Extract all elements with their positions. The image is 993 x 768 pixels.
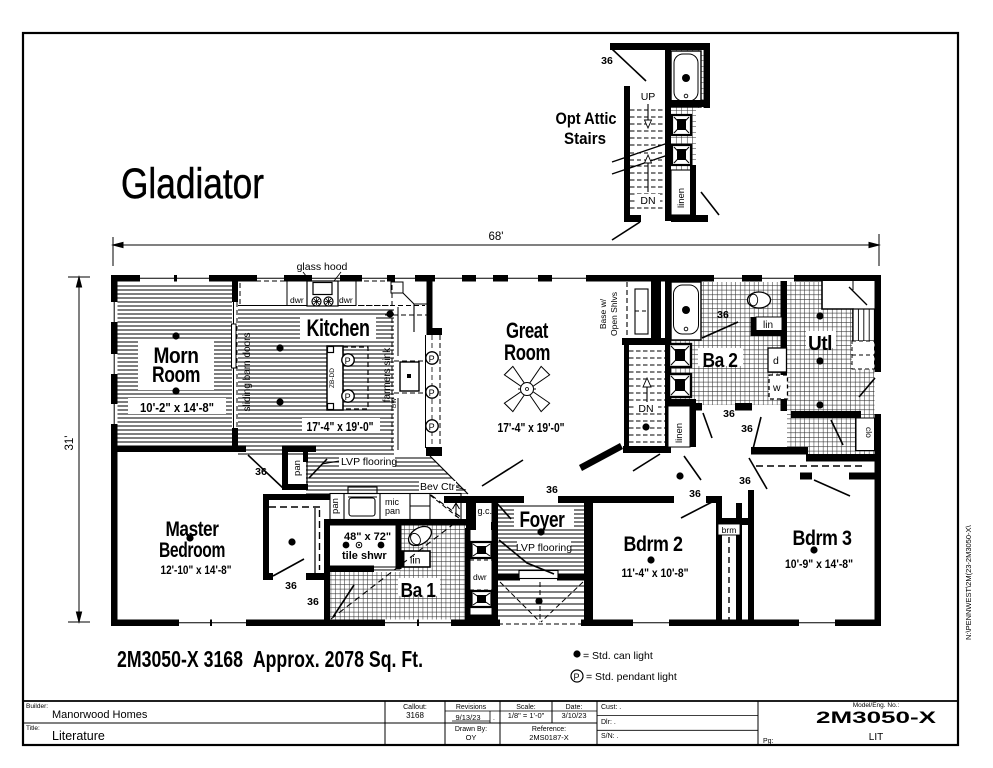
- svg-text:Manorwood Homes: Manorwood Homes: [52, 709, 148, 721]
- svg-text:ZB-DD: ZB-DD: [329, 368, 336, 388]
- svg-text:farmers sink: farmers sink: [382, 347, 393, 402]
- svg-text:2M3050-X: 2M3050-X: [816, 708, 937, 727]
- svg-text:sliding barn doors: sliding barn doors: [242, 333, 253, 412]
- svg-text:Literature: Literature: [52, 729, 105, 743]
- svg-text:Open Shlvs: Open Shlvs: [609, 292, 619, 336]
- svg-text:Builder:: Builder:: [26, 703, 48, 710]
- svg-text:Scale:: Scale:: [516, 704, 536, 711]
- svg-text:36: 36: [601, 55, 613, 67]
- svg-text:pan: pan: [292, 460, 303, 476]
- svg-text:Bdrm 2: Bdrm 2: [624, 533, 683, 556]
- svg-text:dwr: dwr: [473, 572, 487, 582]
- svg-text:= Std. pendant light: = Std. pendant light: [586, 671, 677, 683]
- svg-text:d: d: [773, 355, 779, 367]
- svg-text:= Std. can light: = Std. can light: [583, 650, 653, 662]
- svg-text:Room: Room: [504, 340, 550, 365]
- svg-text:brm: brm: [722, 525, 737, 535]
- svg-text:48" x 72": 48" x 72": [344, 531, 391, 543]
- svg-text:g.c.: g.c.: [478, 506, 493, 516]
- svg-text:12'-10" x 14'-8": 12'-10" x 14'-8": [161, 563, 232, 577]
- svg-text:68': 68': [489, 231, 504, 243]
- svg-text:Bev Ctr: Bev Ctr: [420, 481, 456, 493]
- svg-text:LVP flooring: LVP flooring: [516, 542, 572, 554]
- svg-text:P: P: [429, 422, 435, 432]
- svg-text:Utl: Utl: [808, 333, 832, 355]
- svg-text:36: 36: [741, 423, 753, 435]
- svg-text:clo: clo: [864, 427, 874, 438]
- svg-text:17'-4" x 19'-0": 17'-4" x 19'-0": [307, 420, 374, 434]
- svg-text:Base w/: Base w/: [598, 298, 608, 329]
- svg-text:2M3050-X 3168 Approx. 2078 Sq: 2M3050-X 3168 Approx. 2078 Sq. Ft.: [117, 646, 423, 672]
- svg-text:P: P: [574, 672, 580, 682]
- svg-text:P: P: [345, 356, 351, 366]
- svg-text:DN: DN: [640, 195, 655, 207]
- svg-text:9/13/23: 9/13/23: [455, 713, 480, 722]
- svg-text:36: 36: [546, 484, 558, 496]
- svg-text:2MS0187-X: 2MS0187-X: [529, 733, 569, 742]
- svg-text:Stairs: Stairs: [564, 129, 606, 148]
- svg-text:linen: linen: [676, 188, 687, 208]
- svg-text:P: P: [345, 392, 351, 402]
- svg-text:dwr: dwr: [339, 295, 353, 305]
- svg-text:pan: pan: [330, 498, 341, 514]
- svg-text:Room: Room: [152, 362, 200, 387]
- svg-text:Cust: .: Cust: .: [601, 704, 621, 711]
- svg-text:UP: UP: [641, 91, 656, 103]
- svg-text:LVP flooring: LVP flooring: [341, 456, 397, 468]
- svg-text:Drawn By:: Drawn By:: [455, 726, 487, 733]
- svg-text:36: 36: [689, 488, 701, 500]
- svg-text:tile shwr: tile shwr: [342, 550, 387, 562]
- svg-text:lin: lin: [763, 320, 773, 331]
- svg-text:10'-9" x 14'-8": 10'-9" x 14'-8": [785, 557, 853, 571]
- svg-text:36: 36: [739, 475, 751, 487]
- svg-text:10'-2" x 14'-8": 10'-2" x 14'-8": [140, 401, 214, 415]
- svg-text:LIT: LIT: [869, 732, 883, 743]
- svg-text:Reference:: Reference:: [532, 726, 566, 733]
- svg-text:3168: 3168: [406, 711, 424, 720]
- svg-text:Gladiator: Gladiator: [121, 160, 264, 208]
- svg-text:DN: DN: [638, 403, 653, 415]
- svg-text:Ba 1: Ba 1: [401, 580, 436, 602]
- svg-text:Dlr: .: Dlr: .: [601, 719, 616, 726]
- svg-text:Callout:: Callout:: [403, 704, 427, 711]
- svg-text:36: 36: [717, 309, 729, 321]
- svg-text:17'-4" x 19'-0": 17'-4" x 19'-0": [498, 421, 565, 435]
- svg-text:w: w: [772, 382, 781, 394]
- svg-text:3/10/23: 3/10/23: [561, 711, 586, 720]
- svg-text:dwr: dwr: [290, 295, 304, 305]
- svg-text:36: 36: [285, 580, 297, 592]
- svg-text:Date:: Date:: [566, 704, 583, 711]
- svg-text:Pg:: Pg:: [763, 738, 774, 745]
- svg-text:36: 36: [723, 408, 735, 420]
- svg-text:1/8" = 1'-0": 1/8" = 1'-0": [508, 711, 545, 720]
- svg-text:Kitchen: Kitchen: [307, 315, 370, 342]
- svg-text:36: 36: [255, 466, 267, 478]
- svg-text:pan: pan: [385, 506, 400, 516]
- svg-text:N:\PENNWEST\2M(23-2M3050-X\: N:\PENNWEST\2M(23-2M3050-X\: [964, 524, 973, 640]
- svg-text:P: P: [429, 354, 435, 364]
- svg-text:Bdrm 3: Bdrm 3: [793, 527, 852, 550]
- svg-text:Bedroom: Bedroom: [159, 539, 225, 562]
- svg-text:36: 36: [307, 596, 319, 608]
- svg-text:Title:: Title:: [26, 725, 40, 732]
- svg-text:Foyer: Foyer: [520, 507, 566, 532]
- svg-text:31': 31': [64, 436, 76, 451]
- svg-text:Revisions: Revisions: [456, 704, 487, 711]
- svg-text:OY: OY: [466, 733, 477, 742]
- svg-text:P: P: [429, 388, 435, 398]
- svg-text:11'-4" x 10'-8": 11'-4" x 10'-8": [622, 566, 689, 580]
- svg-text:linen: linen: [674, 423, 685, 443]
- svg-text:Opt Attic: Opt Attic: [556, 109, 617, 128]
- svg-text:glass hood: glass hood: [297, 261, 348, 273]
- svg-text:S/N: .: S/N: .: [601, 733, 619, 740]
- svg-text:Ba 2: Ba 2: [703, 350, 738, 372]
- svg-text:DW: DW: [392, 398, 398, 408]
